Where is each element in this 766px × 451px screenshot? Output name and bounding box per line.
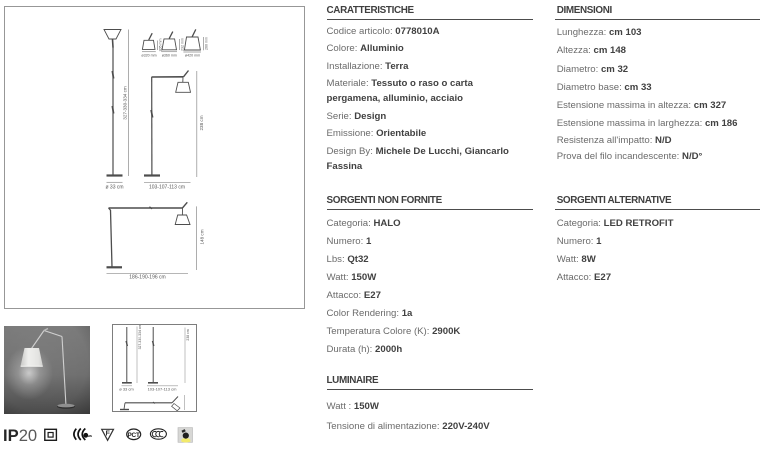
svg-text:ø 33 cm: ø 33 cm	[119, 387, 134, 392]
svg-text:ø320 mm: ø320 mm	[141, 54, 156, 58]
svg-text:148 cm: 148 cm	[200, 229, 205, 244]
svg-text:103-107-113 cm: 103-107-113 cm	[148, 387, 178, 392]
svg-text:ø 33 cm: ø 33 cm	[105, 185, 123, 191]
svg-text:327-330-334 cm: 327-330-334 cm	[123, 86, 128, 120]
svg-text:186-190-196 cm: 186-190-196 cm	[129, 275, 165, 281]
svg-text:us: us	[88, 434, 92, 438]
svg-text:ø360 mm: ø360 mm	[162, 54, 177, 58]
svg-text:260 mm: 260 mm	[204, 37, 208, 50]
svg-text:103-107-113 cm: 103-107-113 cm	[149, 185, 185, 191]
svg-text:238 cm: 238 cm	[199, 115, 204, 130]
svg-text:232 mm: 232 mm	[181, 38, 185, 51]
svg-text:238 cm: 238 cm	[186, 329, 190, 340]
svg-text:РСТ: РСТ	[127, 432, 140, 439]
svg-text:ø420 mm: ø420 mm	[185, 54, 200, 58]
svg-text:205 mm: 205 mm	[159, 39, 163, 52]
svg-text:F: F	[106, 429, 111, 438]
svg-text:327-330-334 cm: 327-330-334 cm	[138, 325, 142, 349]
